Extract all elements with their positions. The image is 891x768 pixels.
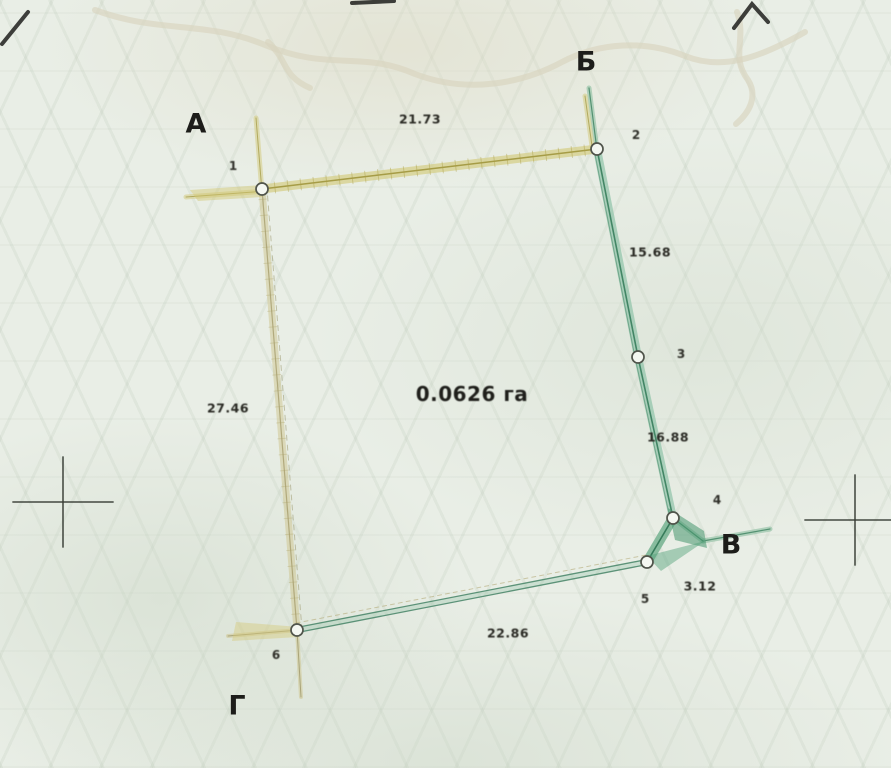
- measurement-near-v: 3.12: [684, 579, 717, 594]
- corner-letter-g: Г: [228, 691, 245, 722]
- measurement-bottom: 22.86: [487, 626, 529, 641]
- scan-artifact: [352, 1, 394, 3]
- point-label-3: 3: [677, 347, 685, 361]
- area-label: 0.0626 га: [416, 382, 529, 406]
- hatch-tick: [260, 215, 268, 216]
- hatch-tick: [278, 438, 286, 439]
- hatch-tick: [279, 454, 287, 455]
- boundary-dashed-line: [267, 189, 302, 630]
- survey-point: [632, 351, 644, 363]
- hatch-tick: [280, 470, 288, 471]
- corner-letter-a: А: [186, 109, 207, 140]
- measurement-right-lower: 16.88: [647, 430, 689, 445]
- hatch-tick: [261, 231, 269, 232]
- hatch-tick: [265, 279, 273, 280]
- point-label-2: 2: [632, 128, 640, 142]
- hatch-tick: [270, 343, 278, 344]
- survey-point: [591, 143, 603, 155]
- survey-point: [641, 556, 653, 568]
- hatch-tick: [292, 614, 300, 615]
- hatch-tick: [268, 311, 276, 312]
- contour-line: [95, 10, 805, 85]
- hatch-tick: [259, 199, 267, 200]
- hatch-tick: [285, 534, 293, 535]
- hatch-tick: [264, 263, 272, 264]
- contour-line: [736, 12, 752, 124]
- hatch-tick: [287, 550, 295, 551]
- hatch-tick: [288, 566, 296, 567]
- boundary-green-band: [297, 562, 647, 630]
- point-label-1: 1: [229, 159, 237, 173]
- point-label-6: 6: [272, 648, 280, 662]
- boundary-dashed-line: [296, 555, 646, 623]
- hatch-tick: [271, 359, 279, 360]
- boundary-green-line: [297, 564, 647, 632]
- hatch-tick: [275, 406, 283, 407]
- contour-line: [268, 42, 310, 88]
- hatch-tick: [266, 295, 274, 296]
- hatch-tick: [277, 422, 285, 423]
- hatch-tick: [284, 518, 292, 519]
- hatch-tick: [283, 502, 291, 503]
- boundary-wedge: [190, 185, 262, 201]
- boundary-tan-line: [262, 189, 297, 630]
- scan-artifact: [2, 12, 28, 44]
- hatch-tick: [269, 327, 277, 328]
- corner-letter-b: Б: [576, 47, 597, 78]
- boundary-green-line: [297, 560, 647, 628]
- hatch-tick: [289, 582, 297, 583]
- point-label-5: 5: [641, 592, 649, 606]
- boundary-wedge: [232, 622, 299, 641]
- survey-point: [256, 183, 268, 195]
- measurement-left: 27.46: [207, 401, 249, 416]
- measurement-top: 21.73: [399, 112, 441, 127]
- cadastral-plan-scan: А Б В Г 1 2 3 4 5 6 21.73 15.68 16.88 27…: [0, 0, 891, 768]
- measurement-right-upper: 15.68: [629, 245, 671, 260]
- hatch-tick: [273, 374, 281, 375]
- survey-point: [291, 624, 303, 636]
- hatch-tick: [290, 598, 298, 599]
- point-label-4: 4: [713, 493, 721, 507]
- survey-point: [667, 512, 679, 524]
- hatch-tick: [274, 390, 282, 391]
- corner-letter-v: В: [721, 530, 742, 561]
- hatch-tick: [282, 486, 290, 487]
- hatch-tick: [263, 247, 271, 248]
